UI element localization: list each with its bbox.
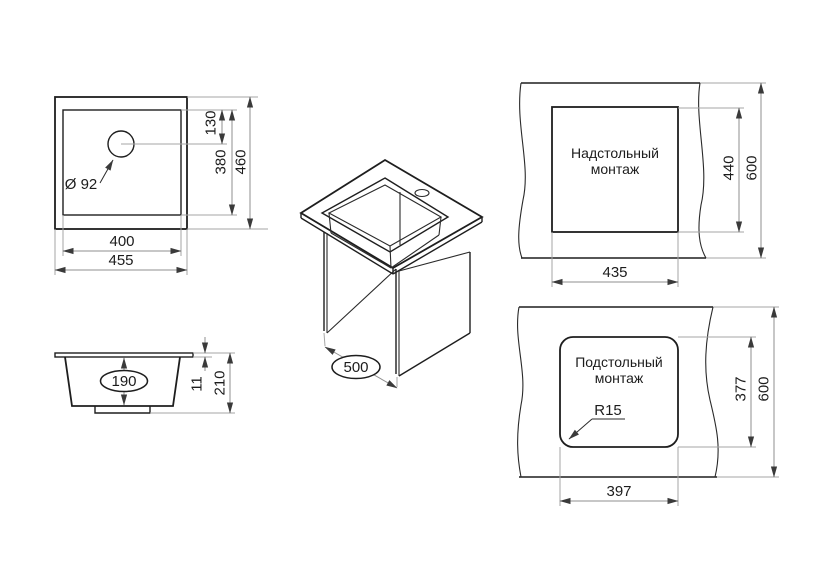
- under-mount-label-line1: Подстольный: [575, 354, 663, 370]
- top-mount-dimensions: 440 600 435: [552, 83, 761, 287]
- break-line-left: [518, 307, 523, 477]
- dim-label-440: 440: [721, 155, 738, 180]
- slab-edge: [393, 222, 482, 274]
- under-mount-view: Подстольный монтаж R15 377 600 397: [518, 307, 779, 506]
- hole-diameter-label: Ø 92: [65, 176, 98, 193]
- dim-label-400: 400: [109, 233, 134, 250]
- dim-label-460: 460: [233, 149, 250, 174]
- hole-leader-line: [100, 160, 113, 183]
- break-line-right: [706, 307, 718, 477]
- corner-radius-callout: R15: [569, 402, 625, 439]
- top-mount-label-line1: Надстольный: [571, 145, 659, 161]
- dim-label-190: 190: [111, 373, 136, 390]
- dim-label-130: 130: [203, 110, 220, 135]
- under-mount-label-line2: монтаж: [595, 370, 644, 386]
- dim-label-500: 500: [343, 359, 368, 376]
- bowl-depth-dimension: 190: [101, 358, 148, 405]
- basin-wall-edge: [390, 246, 391, 268]
- sink-bowl-rect: [63, 110, 181, 215]
- top-mount-label-line2: монтаж: [591, 161, 640, 177]
- side-view-dimensions: 11 210: [150, 337, 235, 413]
- dim-label-600: 600: [756, 376, 773, 401]
- basin-wall-edge: [439, 217, 441, 235]
- drain-foot: [95, 406, 150, 413]
- basin-rim-inner: [329, 185, 441, 246]
- dim-label-397: 397: [606, 483, 631, 500]
- break-line-left: [519, 83, 526, 258]
- dim-label-377: 377: [733, 376, 750, 401]
- dim-label-600: 600: [744, 155, 761, 180]
- side-view: 190 11 210: [55, 337, 235, 413]
- dim-label-380: 380: [213, 149, 230, 174]
- cabinet-interior-bottom-edge: [327, 269, 396, 333]
- dim-label-11: 11: [189, 376, 206, 392]
- depth-dimension-500: 500: [324, 333, 397, 388]
- isometric-view: 500: [301, 160, 482, 388]
- rim-flange: [55, 353, 193, 357]
- faucet-hole: [415, 190, 429, 197]
- basin-interior: [329, 192, 441, 268]
- top-view: Ø 92 130 380 460 400 455: [55, 97, 268, 275]
- sink-drawing-canvas: Ø 92 130 380 460 400 455: [0, 0, 816, 580]
- hole-diameter-callout: Ø 92: [65, 160, 113, 193]
- radius-label: R15: [594, 402, 622, 419]
- cabinet-right-panel-bottom: [399, 333, 470, 376]
- dim-label-435: 435: [602, 264, 627, 281]
- sink-outer-rect: [55, 97, 187, 229]
- basin-rim-outer: [322, 178, 448, 252]
- extension-line: [324, 333, 325, 346]
- basin-bottom-edge: [331, 233, 391, 268]
- countertop-thickness-edges: [301, 213, 482, 274]
- radius-leader-line: [569, 419, 592, 439]
- dim-label-455: 455: [108, 252, 133, 269]
- top-mount-view: Надстольный монтаж 440 600 435: [519, 83, 766, 287]
- technical-drawing: Ø 92 130 380 460 400 455: [0, 0, 816, 580]
- cabinet: [324, 232, 470, 376]
- dim-label-210: 210: [212, 370, 229, 395]
